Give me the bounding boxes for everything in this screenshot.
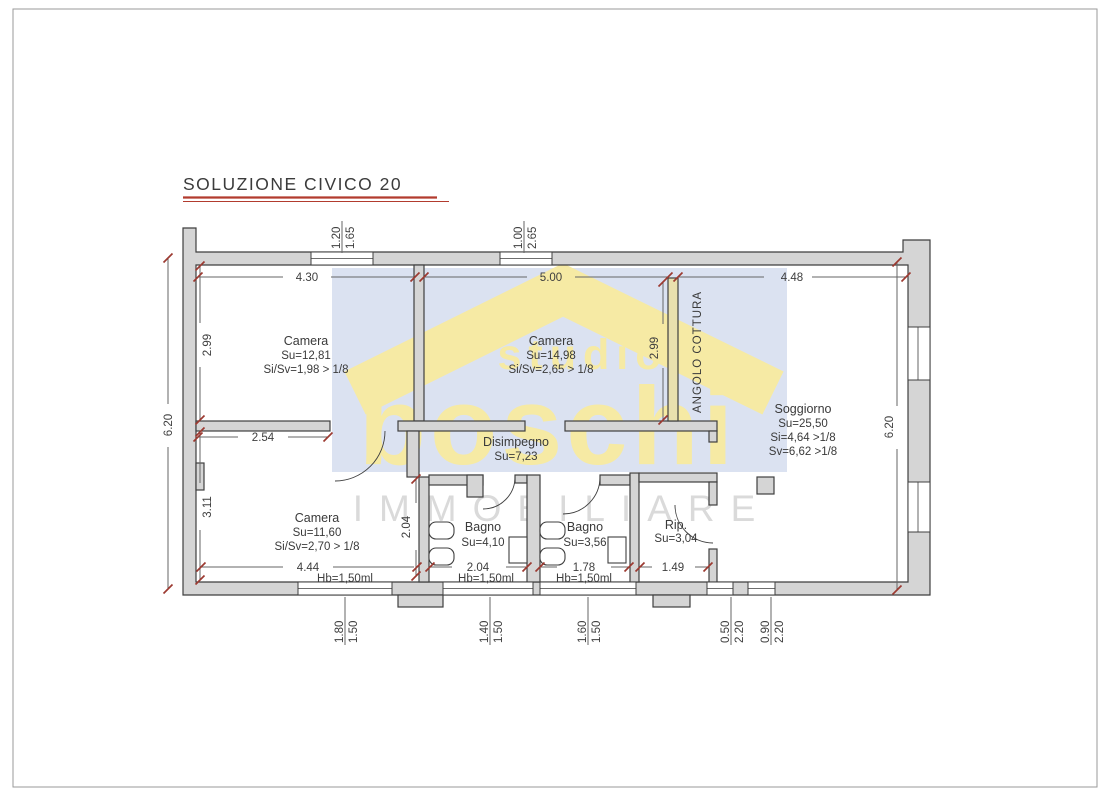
dim-label: 0.50 [720, 621, 732, 643]
wall-corridor-end-stub [709, 431, 717, 442]
bagno2-sink [540, 522, 565, 539]
wall-bagno2-north [600, 475, 630, 485]
room-sv: Sv=6,62 >1/8 [769, 446, 837, 458]
dim-label-hb: Hb=1,50ml [458, 573, 514, 585]
dim-label-hb: Hb=1,50ml [556, 573, 612, 585]
dim-label: 1.20 [331, 227, 343, 249]
room-label-bagno-2: Bagno Su=3,56 [563, 520, 606, 549]
dim-label: 2.20 [774, 621, 786, 643]
wall-angolo-cottura [668, 278, 678, 421]
dim-label: 4.48 [781, 272, 803, 284]
room-ratio: Si/Sv=2,65 > 1/8 [508, 364, 593, 376]
dim-label: 1.50 [493, 621, 505, 643]
wall-camera3-bagno1 [419, 477, 429, 582]
floor-plan-svg: SOLUZIONE CIVICO 20 studio boschi IMMOBI… [0, 0, 1110, 797]
wall-rip-east-upper [709, 482, 717, 505]
wall-corridor-right [565, 421, 717, 431]
window-right-1 [908, 327, 930, 380]
dim-label: 1.49 [662, 562, 684, 574]
room-area: Su=4,10 [461, 537, 504, 549]
dim-label: 5.00 [540, 272, 562, 284]
room-name: Camera [284, 334, 329, 348]
dim-label: 1.50 [348, 621, 360, 643]
dim-label: 2.99 [202, 334, 214, 356]
room-area: Su=3,56 [563, 537, 606, 549]
title-block: SOLUZIONE CIVICO 20 [183, 174, 449, 202]
wall-corridor-left [196, 421, 330, 431]
window-right-2 [908, 482, 930, 532]
room-label-camera-3: Camera Su=11,60 Si/Sv=2,70 > 1/8 [274, 511, 359, 553]
bagno1-sink [429, 522, 454, 539]
wall-camera3-upper [407, 431, 419, 477]
floor-plan-page: SOLUZIONE CIVICO 20 studio boschi IMMOBI… [0, 0, 1110, 797]
room-area: Su=7,23 [494, 451, 537, 463]
dim-label: 3.11 [202, 496, 214, 518]
bagno2-wc [608, 537, 626, 563]
bagno1-wc [509, 537, 527, 563]
wall-corridor-middle [398, 421, 525, 431]
page-title: SOLUZIONE CIVICO 20 [183, 174, 402, 194]
room-name: Rip. [665, 518, 687, 532]
room-name: Disimpegno [483, 435, 549, 449]
room-area: Su=14,98 [526, 350, 576, 362]
dim-label: 1.65 [345, 227, 357, 249]
dim-label-hb: Hb=1,50ml [317, 573, 373, 585]
watermark: studio boschi IMMOBILIARE [332, 268, 787, 529]
dim-label: 1.50 [591, 621, 603, 643]
room-ratio: Si/Sv=2,70 > 1/8 [274, 541, 359, 553]
wall-bagno1-block [467, 475, 483, 497]
dim-label: 2.99 [649, 337, 661, 359]
wall-rip-north [639, 473, 717, 482]
entrance-step-right [653, 595, 690, 607]
dim-label: 2.54 [252, 432, 275, 444]
dim-label: 2.04 [401, 515, 413, 538]
dim-label: 6.20 [163, 414, 175, 436]
dim-label: 6.20 [884, 416, 896, 438]
dim-label: 2.20 [734, 621, 746, 643]
room-ratio: Si/Sv=1,98 > 1/8 [263, 364, 348, 376]
dim-label: 0.90 [760, 621, 772, 643]
dim-label: 1.40 [479, 621, 491, 643]
bagno1-bidet [429, 548, 454, 565]
room-name: Soggiorno [775, 402, 832, 416]
room-area: Su=11,60 [293, 527, 342, 539]
pillar [757, 477, 774, 494]
room-name: Camera [295, 511, 340, 525]
dim-label: 4.30 [296, 272, 318, 284]
room-name: Camera [529, 334, 574, 348]
room-area: Su=25,50 [778, 418, 828, 430]
wall-camera1-camera2 [414, 265, 424, 421]
room-name: Bagno [567, 520, 603, 534]
room-si: Si=4,64 >1/8 [770, 432, 835, 444]
dim-label: 2.65 [527, 227, 539, 249]
dim-label: 1.00 [513, 227, 525, 249]
dim-label: 1.80 [334, 621, 346, 643]
room-label-angolo-cottura: ANGOLO COTTURA [692, 291, 704, 413]
room-area: Su=12,81 [281, 350, 331, 362]
wall-bagno-divider-cap [515, 475, 527, 483]
room-name: Bagno [465, 520, 501, 534]
room-area: Su=3,04 [654, 533, 698, 545]
room-label-bagno-1: Bagno Su=4,10 [461, 520, 504, 549]
dim-label: 1.60 [577, 621, 589, 643]
entrance-step-left [398, 595, 443, 607]
